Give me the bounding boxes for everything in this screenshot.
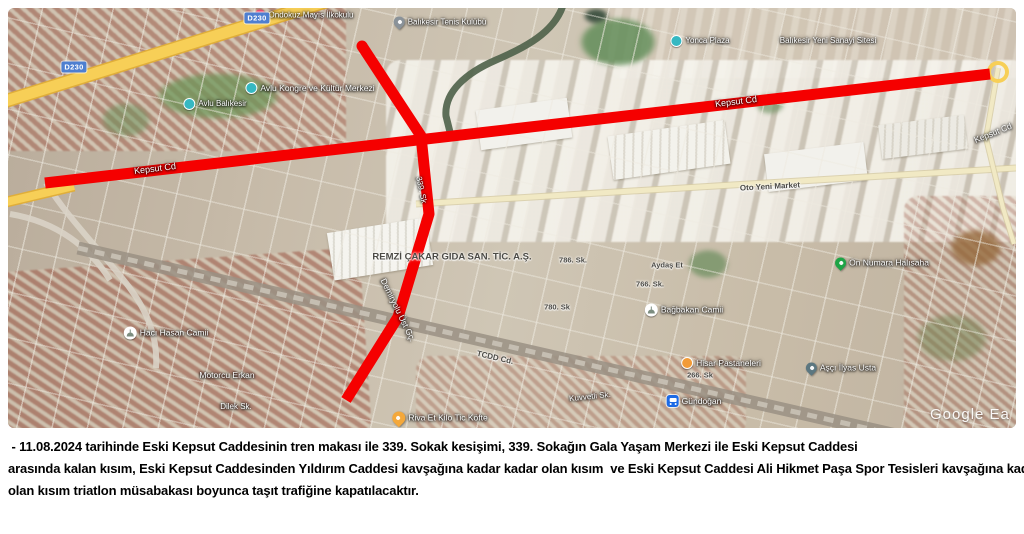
780-sk-label: 780. Sk (544, 303, 570, 311)
demiryolu-ust-gc-label: Demiryolu Üst Gç. (379, 277, 417, 343)
balikesir-yeni-sanayi-sitesi-label: Balıkesir Yeni Sanayi Sitesi (780, 37, 877, 45)
kuvvetli-sk-label: Kuvvetli Sk. (569, 391, 611, 403)
poi-circle-icon (183, 98, 195, 110)
266-sk-label: 266. Sk (687, 371, 713, 379)
kepsut-cd-label: Kepsut Cd (973, 122, 1013, 145)
dilek-sk-label: Dilek Sk. (220, 403, 252, 411)
closure-notice: - 11.08.2024 tarihinde Eski Kepsut Cadde… (8, 436, 1022, 502)
road-shield-d230: D230 (244, 13, 269, 24)
announcement-page: Kepsut CdKepsut CdKepsut Cd339. SkDemiry… (0, 0, 1024, 534)
yonca-plaza-label: Yonca Plaza (670, 35, 729, 47)
google-earth-watermark: Google Ea (930, 406, 1010, 423)
kepsut-cd-label: Kepsut Cd (715, 95, 758, 109)
closure-notice-line-2: arasında kalan kısım, Eski Kepsut Caddes… (8, 458, 1022, 480)
on-numara-halisaha-label: On Numara Halısaha (835, 258, 929, 269)
riva-et-kilo-tic-kofte-label: Riva Et Kilo Tic Köfte (392, 412, 487, 425)
oto-yeni-market-label: Oto Yeni Market (740, 181, 801, 192)
asci-i-lyas-usta-label: Aşçı İlyas Usta (806, 363, 876, 374)
restaurant-pin-icon (804, 360, 820, 376)
road-shield-d230: D230 (61, 62, 86, 73)
balikesir-tenis-kulubu-label: Balıkesir Tenis Kulübü (394, 17, 487, 28)
closure-notice-line-3: olan kısım triatlon müsabakası boyunca t… (8, 480, 1022, 502)
339-sk-label: 339. Sk (414, 176, 427, 204)
bakery-circle-icon (681, 357, 693, 369)
bagbakan-camii-label: Bağbakan Camii (645, 304, 723, 317)
766-sk-label: 766. Sk. (636, 280, 664, 288)
gundogan-label: Gündoğan (667, 395, 722, 407)
sports-field-pin-icon (833, 255, 849, 271)
hisar-pastaneleri-label: Hisar Pastaneleri (681, 357, 761, 369)
satellite-map: Kepsut CdKepsut CdKepsut Cd339. SkDemiry… (8, 8, 1016, 428)
map-labels-layer: Kepsut CdKepsut CdKepsut Cd339. SkDemiry… (8, 8, 1016, 428)
closure-notice-line-1: - 11.08.2024 tarihinde Eski Kepsut Cadde… (8, 436, 1022, 458)
avlu-balikesir-label: Avlu Balıkesir (183, 98, 246, 110)
motorcu-erkan-label: Motorcu Erkan (199, 371, 254, 380)
butcher-pin-icon (390, 409, 408, 427)
mosque-icon (124, 327, 137, 340)
aydas-et-label: Aydaş Et (651, 261, 683, 269)
tcdd-cd-label: TCDD Cd. (476, 350, 514, 366)
remzi-cakar-gida-san-ti-c-a-s-label: REMZİ ÇAKAR GIDA SAN. TİC. A.Ş. (372, 252, 531, 262)
poi-circle-icon (670, 35, 682, 47)
avlu-kongre-ve-kultur-merkezi-label: Avlu Kongre ve Kültür Merkezi (245, 82, 374, 94)
bus-stop-icon (667, 395, 679, 407)
kepsut-cd-label: Kepsut Cd (134, 162, 177, 176)
786-sk-label: 786. Sk. (559, 256, 587, 264)
mosque-icon (645, 304, 658, 317)
poi-circle-icon (245, 82, 257, 94)
place-pin-icon (391, 14, 407, 30)
haci-hasan-camii-label: Hacı Hasan Camii (124, 327, 209, 340)
